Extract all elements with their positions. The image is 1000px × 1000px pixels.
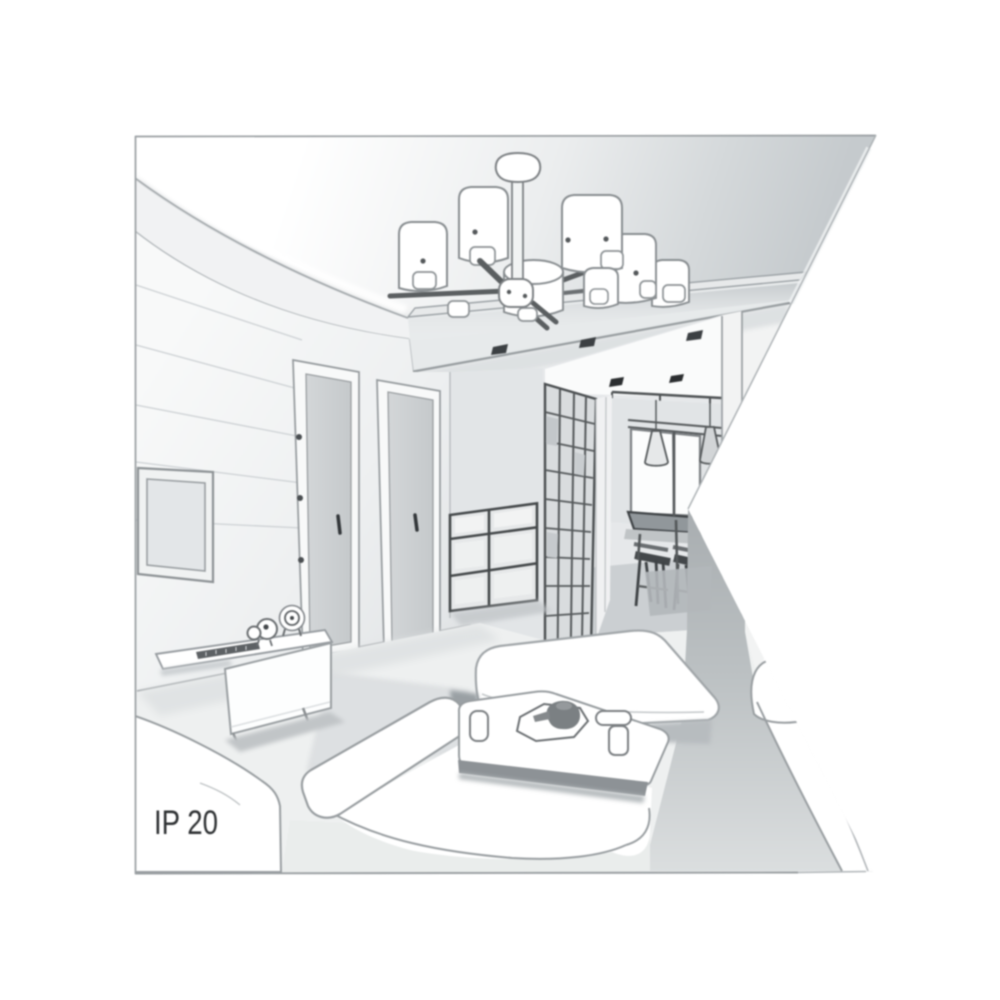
svg-text:IP 20: IP 20: [154, 804, 218, 842]
